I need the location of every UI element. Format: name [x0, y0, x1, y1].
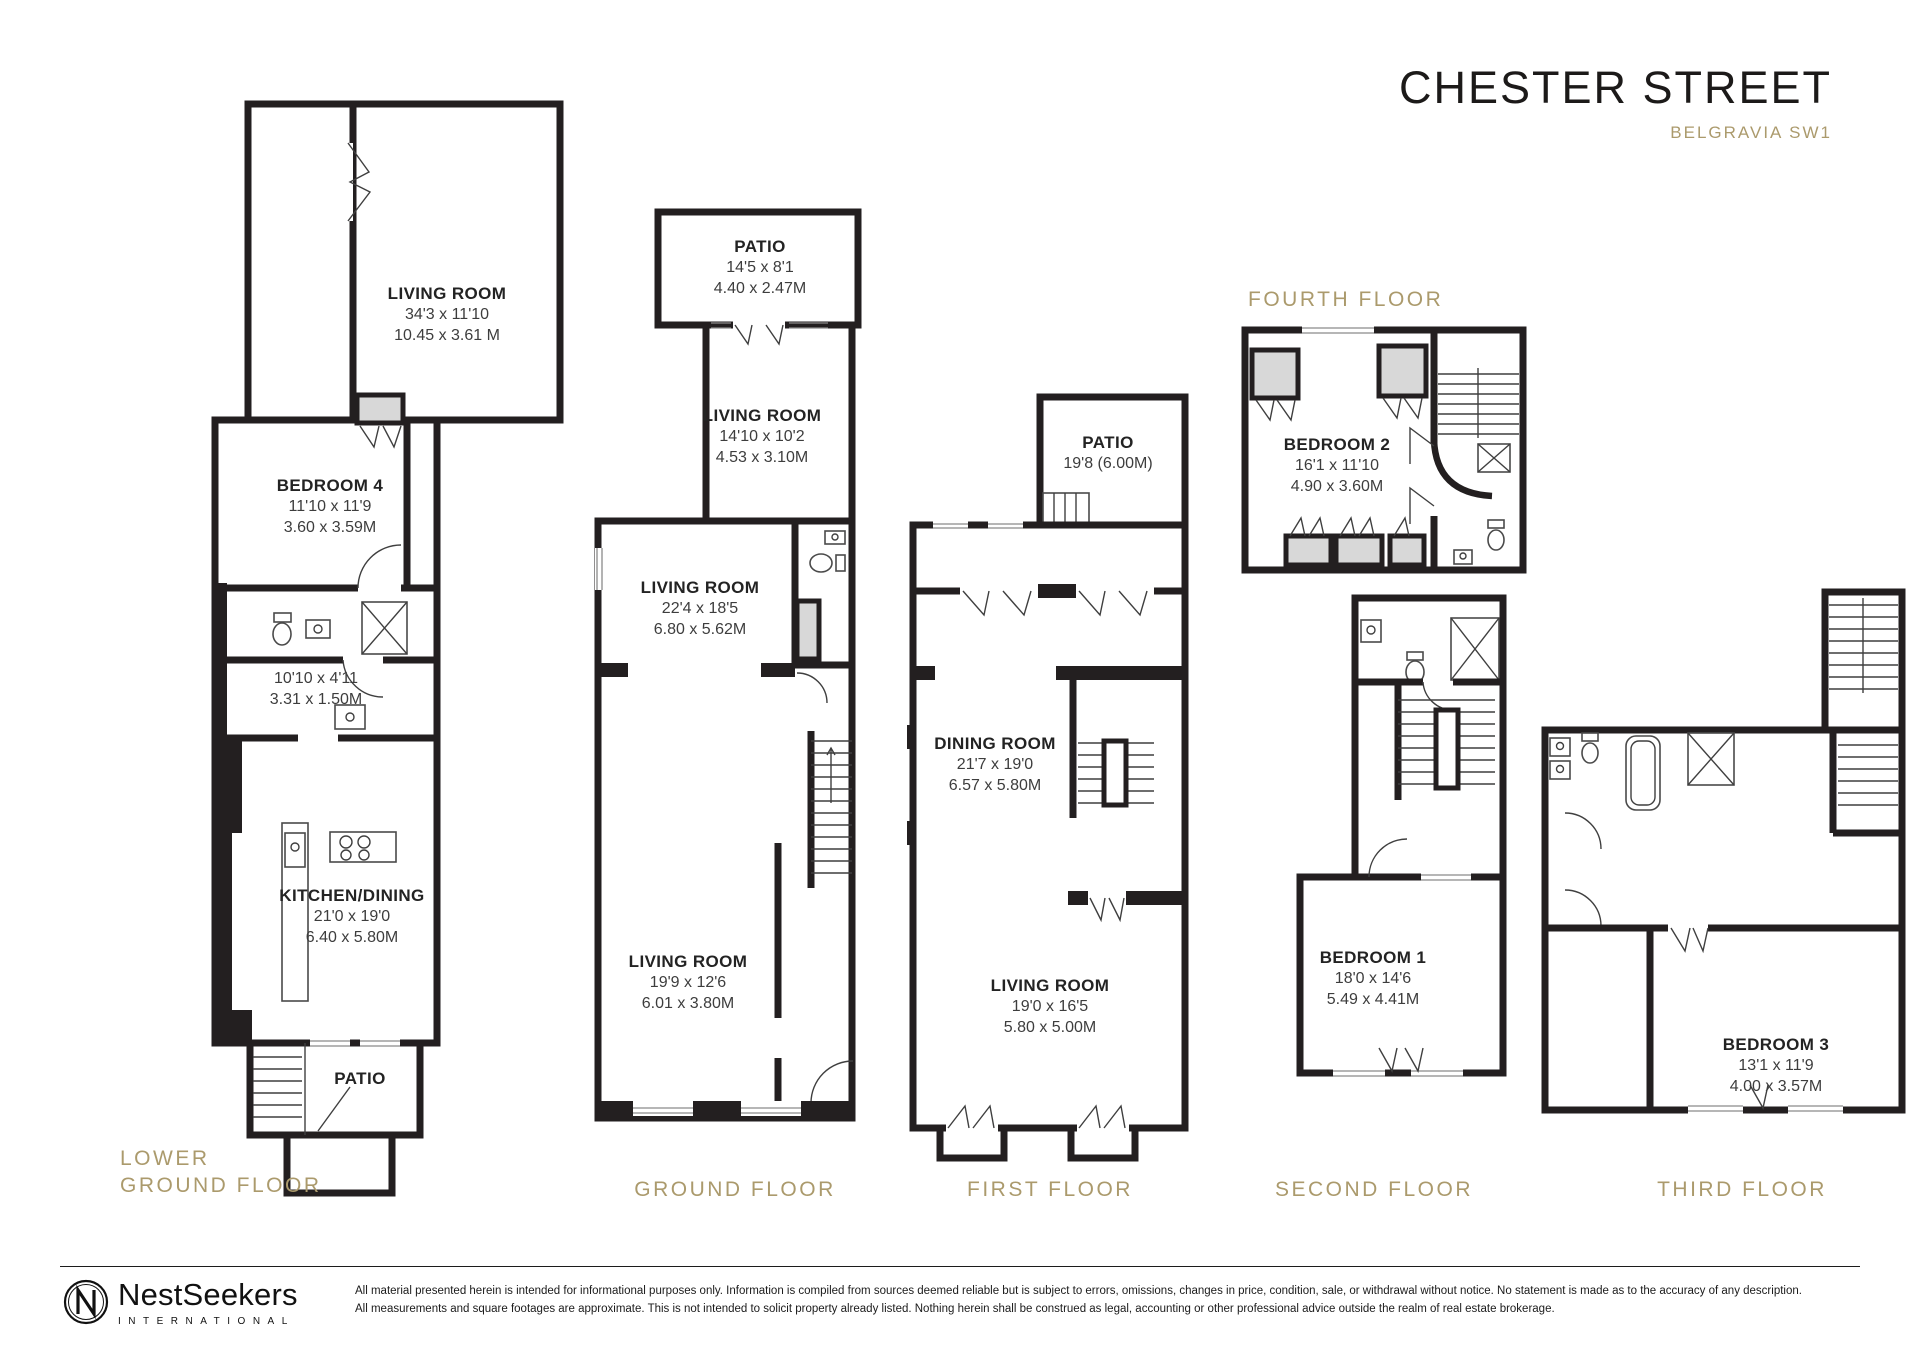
room-label-g-living-room-upper: LIVING ROOM 14'10 x 10'2 4.53 x 3.10M: [703, 405, 822, 468]
toilet-icon: [1406, 652, 1424, 683]
bathtub-icon: [1626, 736, 1660, 810]
floor-label-first: FIRST FLOOR: [967, 1176, 1133, 1203]
floorplan-fourth: [1238, 278, 1528, 578]
stove-icon: [330, 832, 396, 862]
nestseekers-logo-icon: [62, 1276, 114, 1328]
shower-icon: [1451, 618, 1499, 680]
floor-label-lower-ground: LOWER GROUND FLOOR: [120, 1145, 322, 1199]
floorplan-sheet: CHESTER STREET BELGRAVIA SW1: [0, 0, 1920, 1357]
shower-icon: [362, 602, 407, 654]
sink-icon: [285, 833, 305, 867]
brand: NestSeekers INTERNATIONAL: [118, 1277, 298, 1327]
shower-icon: [1688, 733, 1734, 785]
sink-icon: [1550, 738, 1570, 756]
room-label-dining-room: DINING ROOM 21'7 x 19'0 6.57 x 5.80M: [934, 733, 1056, 796]
floorplan-lower-ground: [198, 85, 573, 1205]
header: CHESTER STREET BELGRAVIA SW1: [1399, 62, 1832, 143]
floor-label-second: SECOND FLOOR: [1275, 1176, 1473, 1203]
room-label-bedroom-3: BEDROOM 3 13'1 x 11'9 4.00 x 3.57M: [1723, 1034, 1830, 1097]
toilet-icon: [1488, 520, 1504, 550]
floor-label-third: THIRD FLOOR: [1657, 1176, 1827, 1203]
page-title: CHESTER STREET: [1399, 62, 1832, 114]
toilet-icon: [273, 613, 291, 645]
stairs-icon: [1043, 493, 1089, 523]
sink-icon: [1550, 761, 1570, 779]
room-label-g-living-room-lower: LIVING ROOM 19'9 x 12'6 6.01 x 3.80M: [629, 951, 748, 1014]
toilet-icon: [810, 554, 845, 572]
sink-icon: [306, 620, 330, 638]
floor-label-fourth: FOURTH FLOOR: [1248, 286, 1443, 313]
sink-icon: [825, 531, 845, 544]
footer-divider: [60, 1266, 1860, 1267]
floor-label-ground: GROUND FLOOR: [634, 1176, 836, 1203]
page-subtitle: BELGRAVIA SW1: [1399, 123, 1832, 143]
room-label-lg-utility: 10'10 x 4'11 3.31 x 1.50M: [270, 668, 363, 710]
room-label-lg-patio: PATIO: [334, 1068, 385, 1089]
room-label-g-living-room-main: LIVING ROOM 22'4 x 18'5 6.80 x 5.62M: [641, 577, 760, 640]
room-label-bedroom-4: BEDROOM 4 11'10 x 11'9 3.60 x 3.59M: [277, 475, 384, 538]
room-label-bedroom-2: BEDROOM 2 16'1 x 11'10 4.90 x 3.60M: [1284, 434, 1391, 497]
sink-icon: [1361, 620, 1381, 642]
brand-subtitle: INTERNATIONAL: [118, 1316, 298, 1327]
room-label-g-patio: PATIO 14'5 x 8'1 4.40 x 2.47M: [714, 236, 807, 299]
room-label-f1-patio: PATIO 19'8 (6.00M): [1063, 432, 1152, 474]
room-label-kitchen-dining: KITCHEN/DINING 21'0 x 19'0 6.40 x 5.80M: [279, 885, 424, 948]
sink-icon: [1454, 550, 1472, 564]
room-label-lg-living-room: LIVING ROOM 34'3 x 11'10 10.45 x 3.61 M: [388, 283, 507, 346]
shower-icon: [1478, 444, 1510, 472]
toilet-icon: [1582, 733, 1598, 763]
disclaimer-line-1: All material presented herein is intende…: [355, 1283, 1802, 1301]
room-label-f1-living-room: LIVING ROOM 19'0 x 16'5 5.80 x 5.00M: [991, 975, 1110, 1038]
brand-name: NestSeekers: [118, 1277, 298, 1313]
disclaimer-line-2: All measurements and square footages are…: [355, 1301, 1802, 1319]
disclaimer: All material presented herein is intende…: [355, 1283, 1802, 1318]
room-label-bedroom-1: BEDROOM 1 18'0 x 14'6 5.49 x 4.41M: [1320, 947, 1427, 1010]
